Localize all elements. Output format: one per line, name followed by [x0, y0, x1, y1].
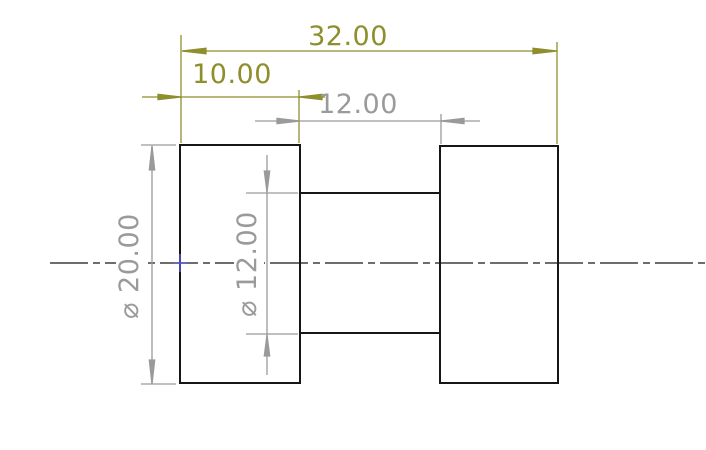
dim-12-arrow-left [277, 118, 300, 123]
dimension-label-shaft-length[interactable]: 12.00 [318, 91, 398, 119]
dim-dia12-arrow-top [264, 171, 269, 192]
dim-32-arrow-left [182, 48, 206, 54]
cad-drawing-view: 32.00 10.00 12.00 ⌀ 20.00 ⌀ 12.00 [0, 0, 706, 450]
dim-10-arrow-left [158, 94, 181, 99]
right-flange-edge[interactable] [440, 146, 558, 383]
dim-dia20-arrow-bottom [149, 360, 154, 384]
dimension-label-shaft-diameter[interactable]: ⌀ 12.00 [234, 197, 264, 331]
dim-dia20-arrow-top [149, 146, 154, 170]
drawing-geometry [0, 0, 706, 450]
dim-dia12-arrow-bottom [264, 335, 269, 356]
dim-12-arrow-right [441, 118, 464, 123]
dimension-label-flange-width[interactable]: 10.00 [192, 61, 272, 89]
dimension-label-overall-length[interactable]: 32.00 [308, 23, 388, 51]
dim-32-arrow-right [533, 48, 557, 54]
dimension-label-flange-diameter[interactable]: ⌀ 20.00 [116, 196, 146, 336]
dimension-dia20-graphics[interactable] [141, 145, 176, 384]
dimension-10-graphics[interactable] [142, 90, 325, 143]
center-mark[interactable] [173, 254, 187, 272]
